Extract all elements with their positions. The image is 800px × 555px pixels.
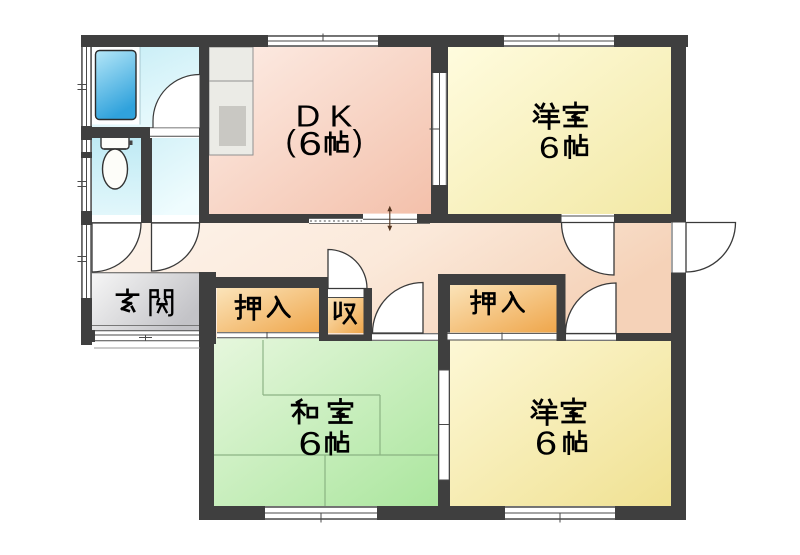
svg-text:(: (: [286, 123, 297, 158]
svg-text:6: 6: [535, 425, 557, 462]
svg-text:6: 6: [299, 125, 322, 162]
svg-text:6: 6: [539, 131, 560, 166]
svg-text:6: 6: [299, 425, 322, 462]
svg-text:): ): [353, 123, 363, 158]
